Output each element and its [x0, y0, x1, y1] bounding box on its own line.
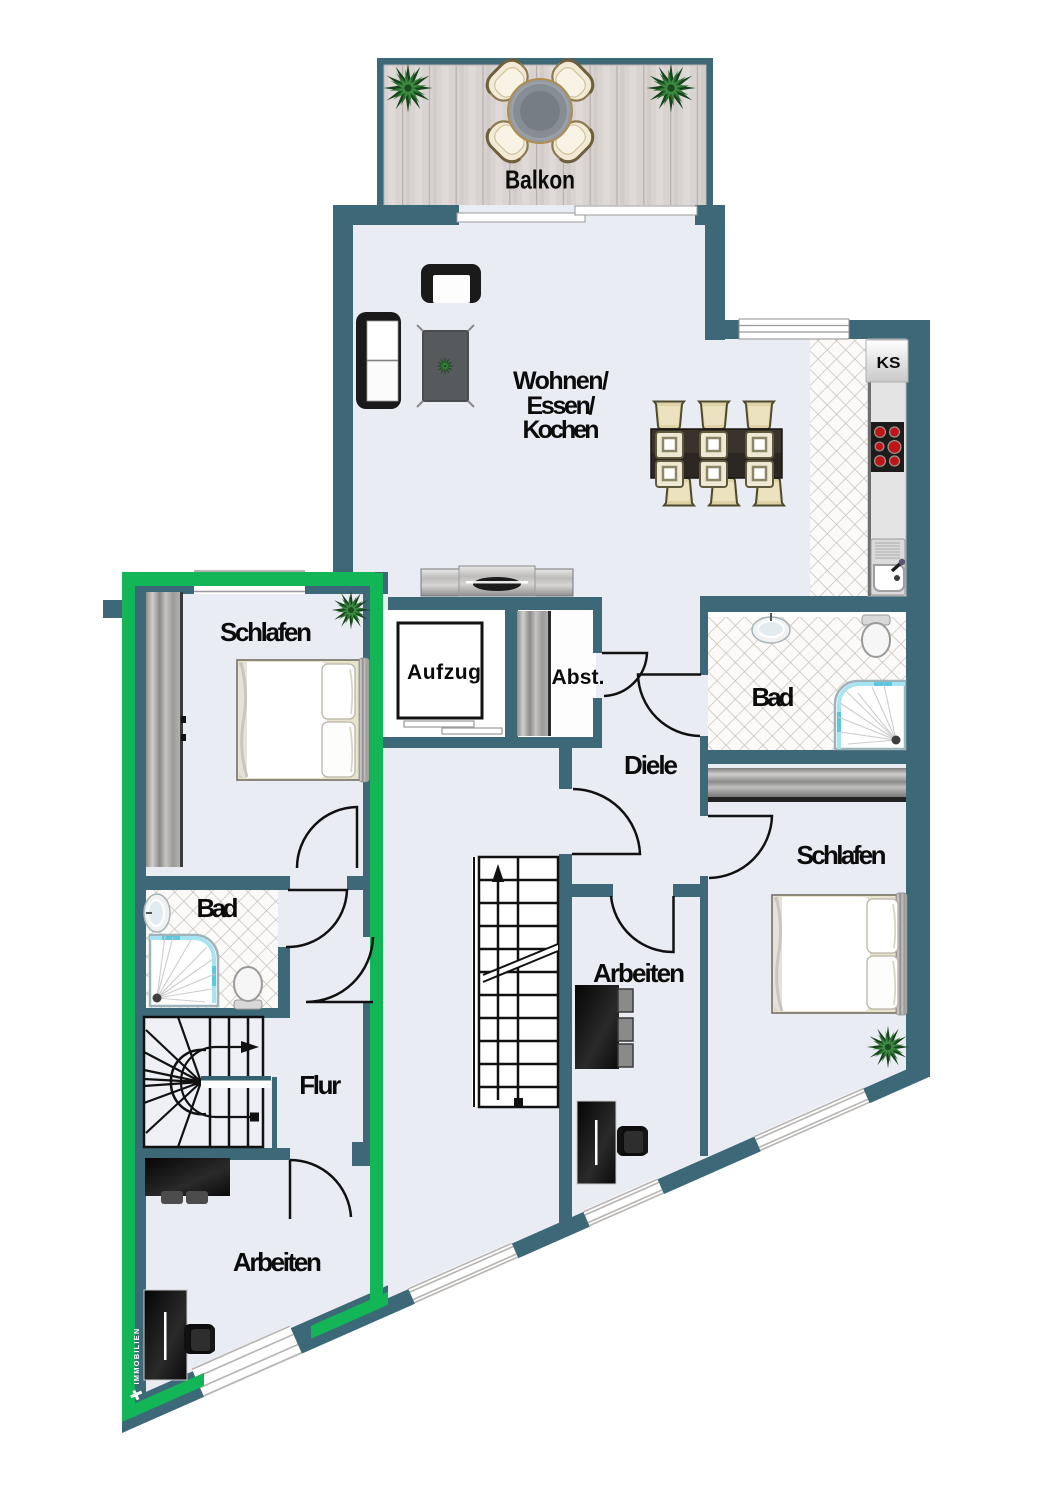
svg-text:Wohnen/: Wohnen/ — [513, 367, 609, 395]
svg-text:Balkon: Balkon — [505, 165, 575, 195]
svg-text:Schlafen: Schlafen — [797, 840, 887, 870]
svg-text:Flur: Flur — [299, 1070, 341, 1100]
svg-text:Bad: Bad — [752, 682, 795, 712]
svg-text:Schlafen: Schlafen — [220, 617, 312, 647]
svg-text:Abst.: Abst. — [552, 666, 605, 689]
svg-text:Aufzug: Aufzug — [407, 661, 481, 684]
svg-text:Diele: Diele — [624, 750, 678, 780]
svg-text:Arbeiten: Arbeiten — [233, 1247, 322, 1277]
svg-text:KS: KS — [877, 355, 901, 372]
svg-text:Arbeiten: Arbeiten — [593, 958, 685, 988]
svg-text:IMMOBILIEN: IMMOBILIEN — [132, 1328, 141, 1385]
svg-text:Bad: Bad — [197, 893, 239, 923]
svg-text:Kochen: Kochen — [523, 416, 600, 444]
